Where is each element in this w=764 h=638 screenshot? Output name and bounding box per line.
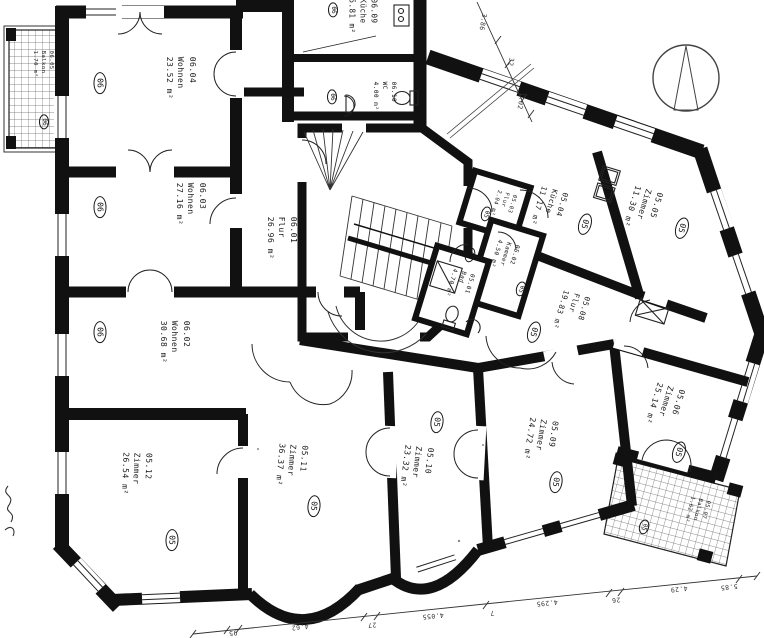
dimension-text: 32 [506,57,515,67]
dimension-text: 26 [611,596,620,605]
dimension-text: 95 [228,629,237,638]
unit-badge: 06 [94,196,107,218]
room-label-06-03: 06.03Wohnen27.16 m² [161,183,231,226]
room-label-06-10: 06.10WC4.00 m² [362,82,414,111]
room-label-06-04: 06.04Wohnen23.52 m² [151,57,221,100]
winder-stairs [304,129,363,190]
room-label-06-05: 06.05Balkon1.70 m² [22,51,70,78]
room-label-05-10: 05.10Zimmer23.32 m² [385,443,459,494]
floorplan-sheet: 06.04Wohnen23.52 m² 06.03Wohnen27.16 m² … [0,0,764,638]
room-label-06-02: 06.02Wohnen30.68 m² [145,321,215,364]
unit-badge: 06 [94,321,107,343]
handwritten-note [5,486,14,536]
room-label-06-01: 06.01Flur26.96 m² [252,217,322,260]
room-label-05-12: 05.12Zimmer26.54 m² [106,452,177,497]
dimension-text: 27 [367,621,376,630]
north-arrow-icon [653,45,719,111]
dimension-text: 7 [489,609,494,617]
room-label-06-09: 06.09Küche5.81 m² [335,0,400,34]
unit-badge: 06 [94,72,107,94]
room-label-05-11: 05.11Zimmer36.37 m² [260,442,333,490]
balcony-top-left [4,26,60,152]
